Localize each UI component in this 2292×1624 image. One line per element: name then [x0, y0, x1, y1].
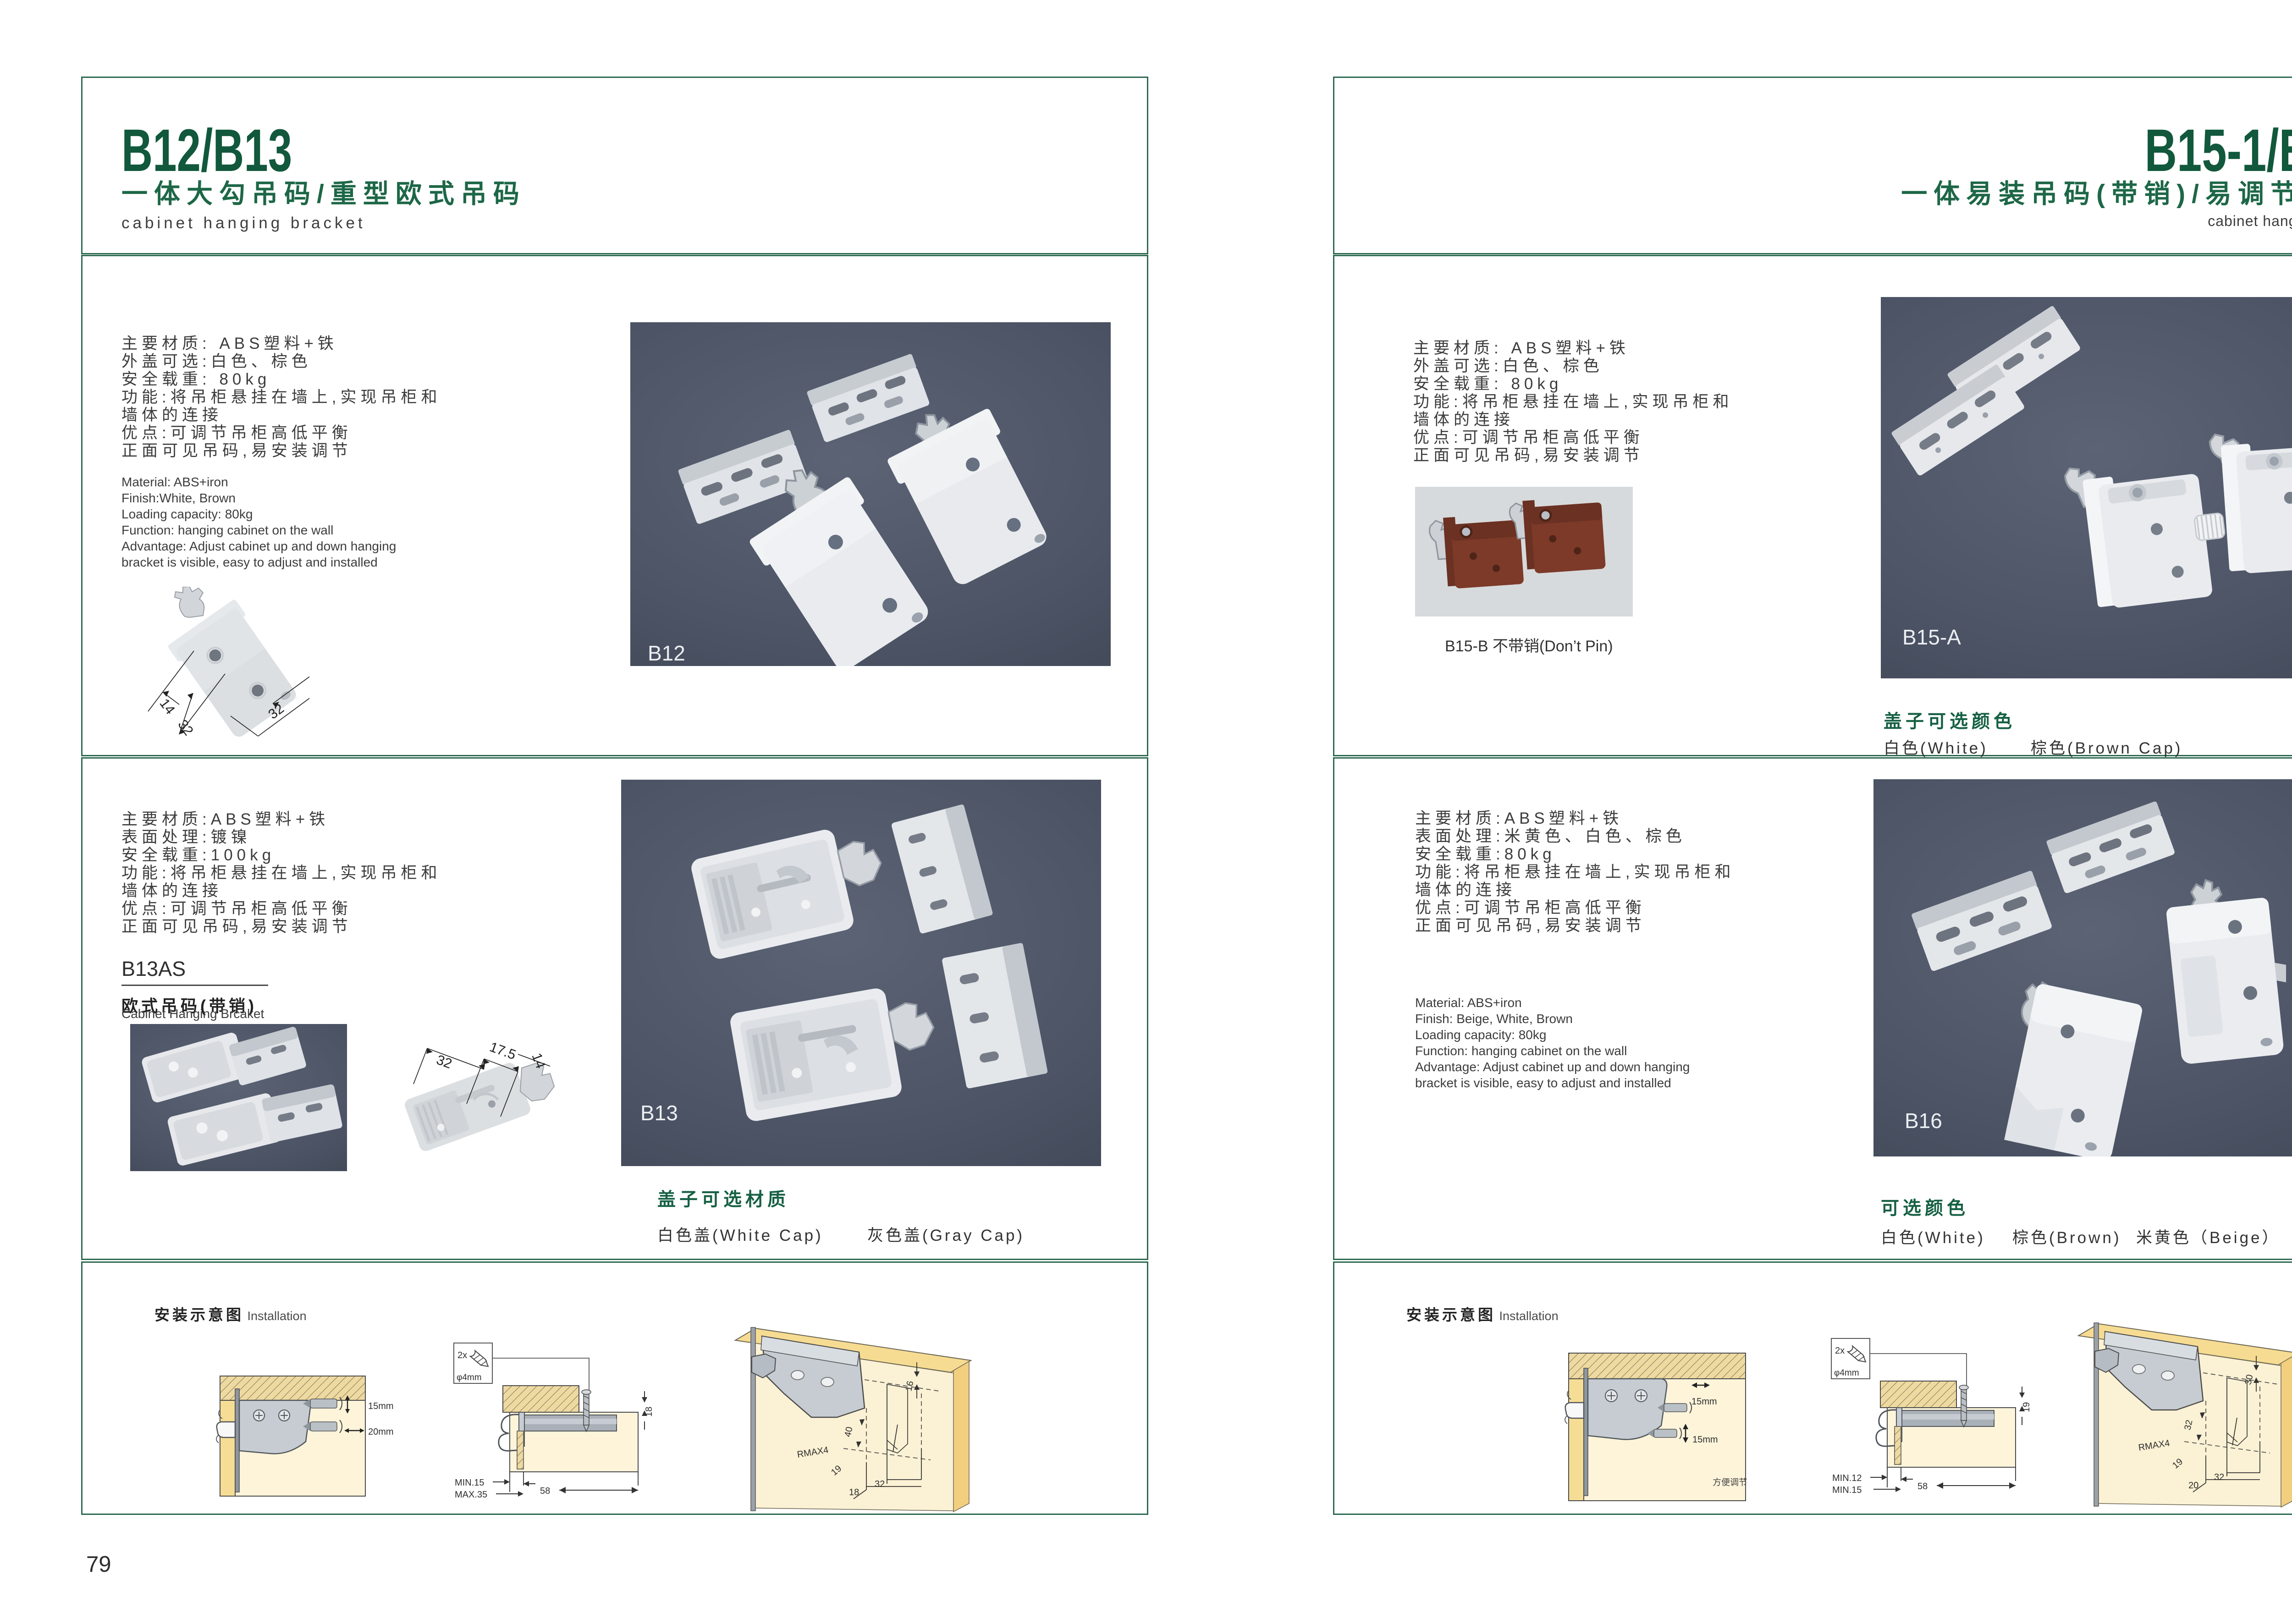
svg-text:15mm: 15mm: [1691, 1397, 1717, 1407]
svg-text:2x: 2x: [457, 1350, 467, 1360]
svg-text:19: 19: [2022, 1402, 2032, 1412]
svg-text:40: 40: [843, 1426, 854, 1438]
svg-text:方便调节: 方便调节: [1713, 1477, 1747, 1487]
svg-text:15mm: 15mm: [368, 1401, 394, 1411]
svg-text:32: 32: [175, 717, 196, 738]
svg-text:58: 58: [540, 1486, 550, 1496]
svg-text:32: 32: [435, 1052, 454, 1072]
svg-text:18: 18: [644, 1407, 654, 1417]
svg-text:32: 32: [2182, 1419, 2194, 1431]
svg-text:MAX.35: MAX.35: [455, 1490, 487, 1500]
svg-text:17.5: 17.5: [488, 1040, 518, 1063]
svg-text:2x: 2x: [1835, 1346, 1845, 1356]
svg-text:MIN.15: MIN.15: [455, 1478, 484, 1488]
svg-text:φ4mm: φ4mm: [457, 1373, 482, 1382]
svg-text:14: 14: [156, 696, 177, 717]
svg-text:32: 32: [875, 1479, 885, 1489]
svg-text:φ4mm: φ4mm: [1834, 1368, 1859, 1378]
svg-text:20mm: 20mm: [368, 1427, 394, 1437]
svg-text:15mm: 15mm: [1692, 1435, 1718, 1445]
svg-text:32: 32: [2214, 1472, 2224, 1482]
svg-text:MIN.15: MIN.15: [1832, 1485, 1862, 1495]
svg-text:16: 16: [904, 1380, 915, 1392]
svg-text:20: 20: [2188, 1481, 2198, 1491]
svg-text:MIN.12: MIN.12: [1832, 1473, 1862, 1483]
svg-text:18: 18: [849, 1487, 859, 1497]
svg-text:58: 58: [1917, 1481, 1928, 1492]
svg-text:30: 30: [2243, 1374, 2255, 1386]
